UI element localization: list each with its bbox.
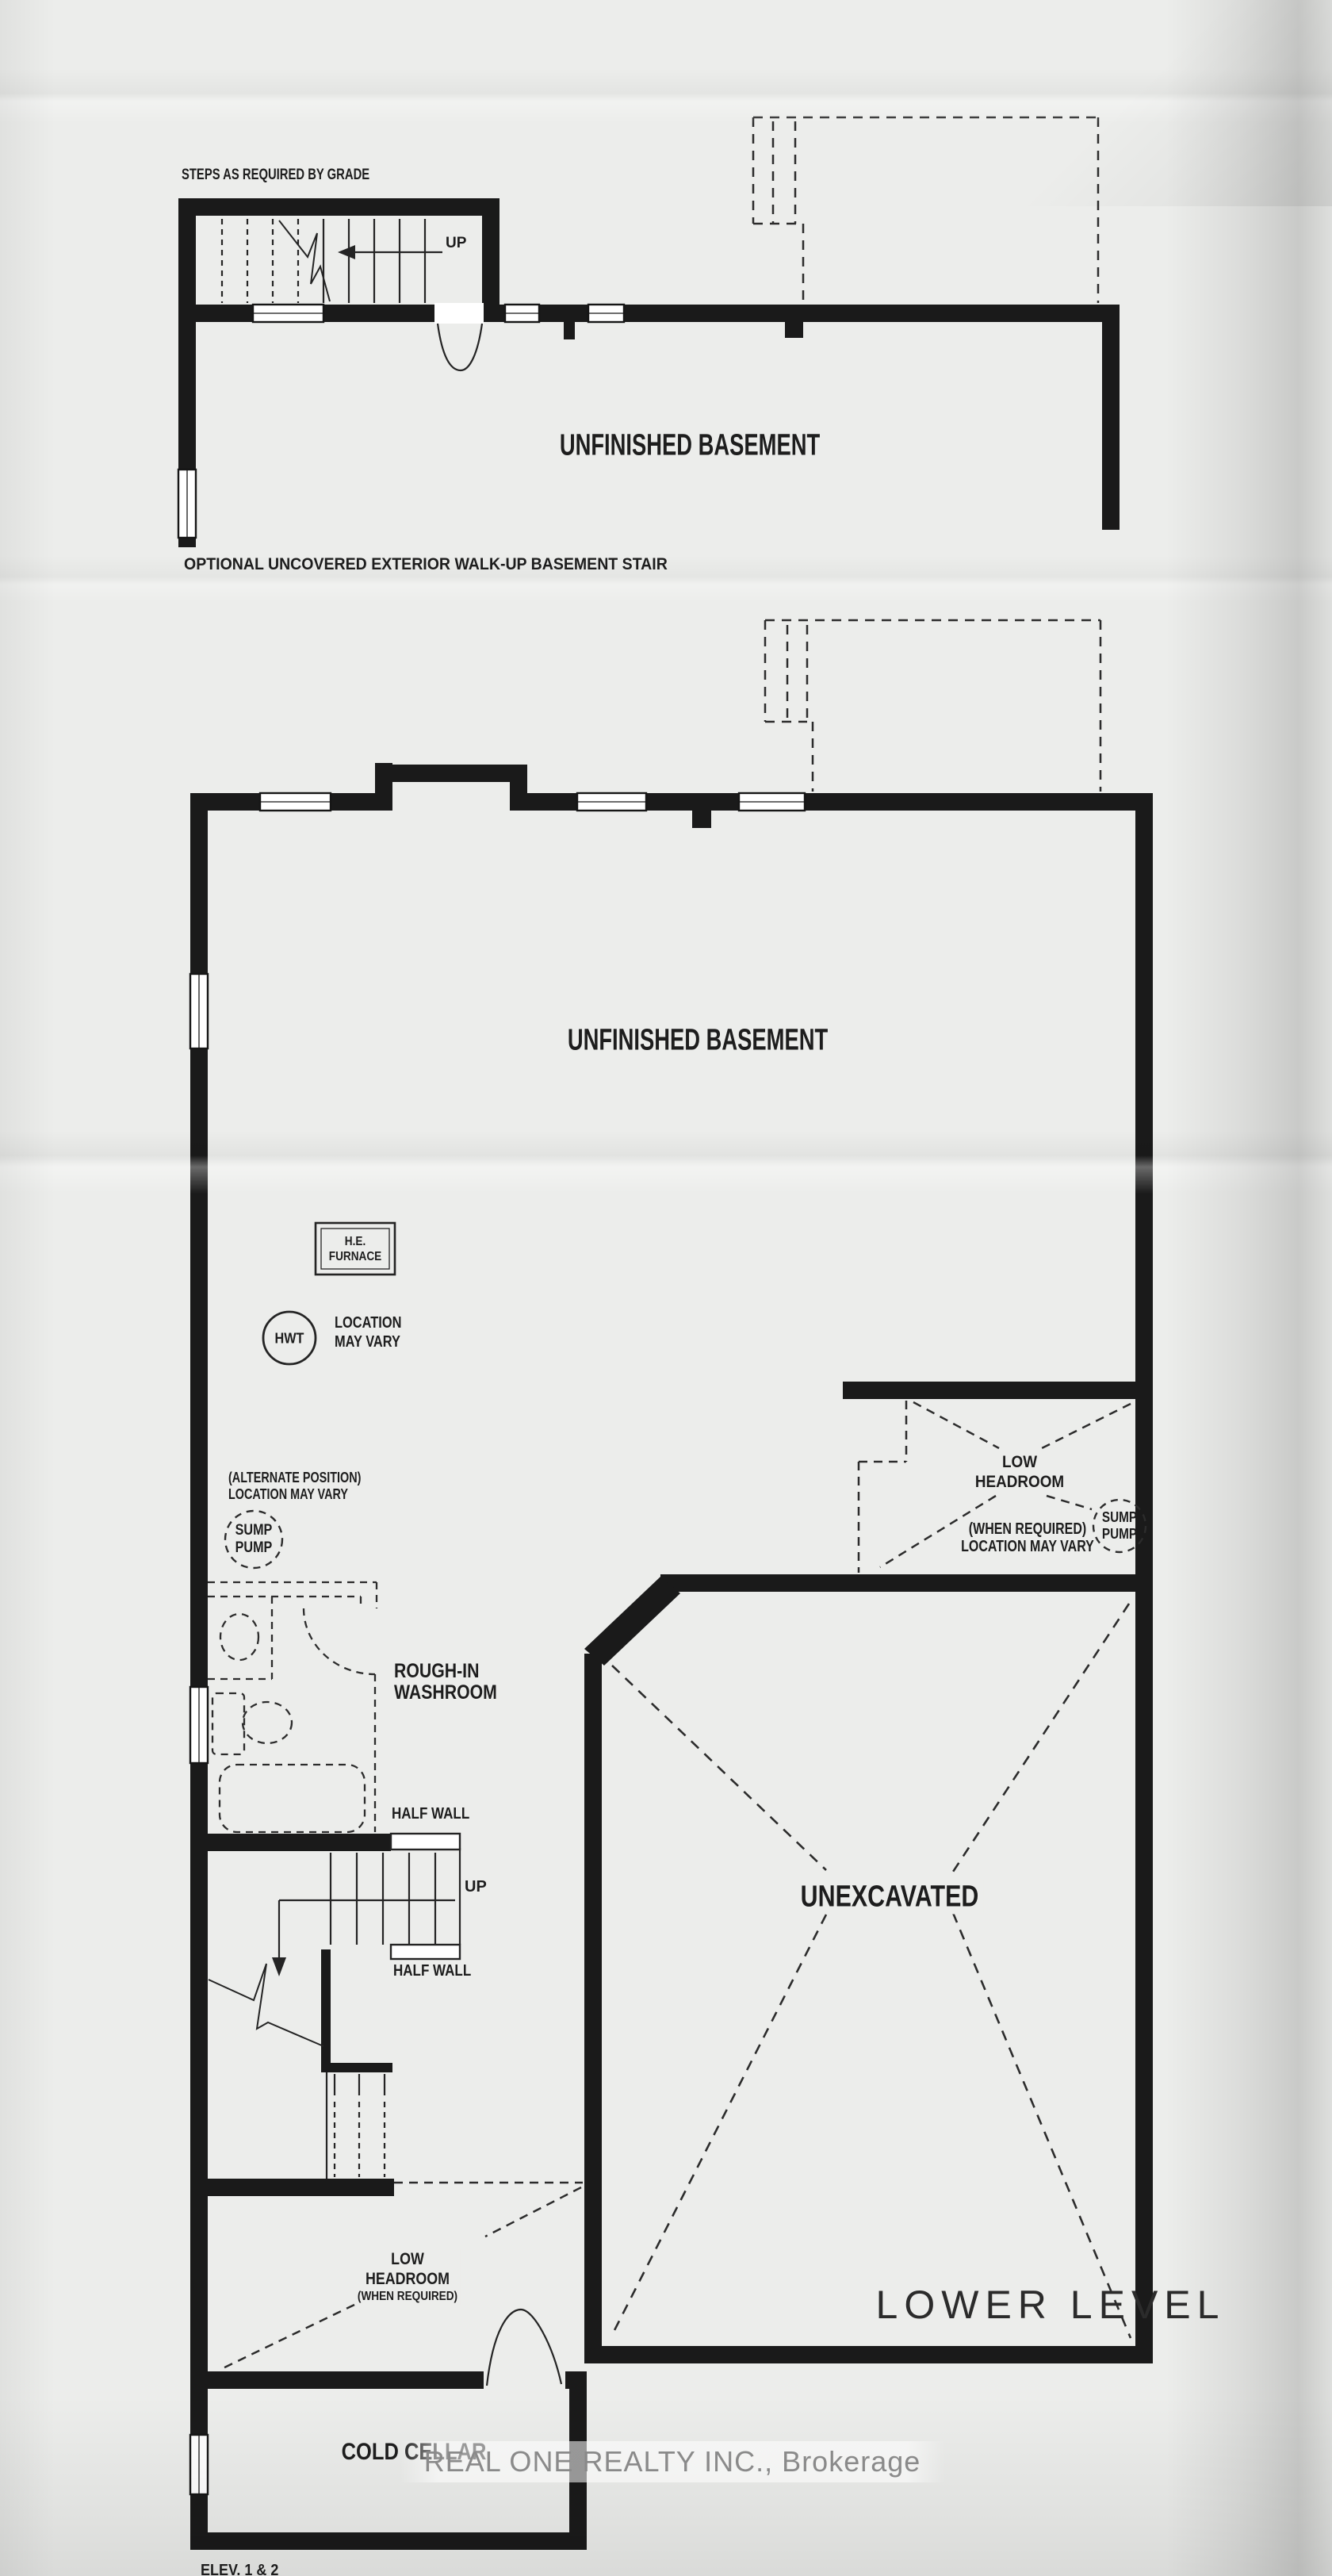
porch-outline-top-dashed xyxy=(753,117,1098,303)
alternate-position-note: (ALTERNATE POSITION) LOCATION MAY VARY xyxy=(228,1470,361,1503)
low-headroom-bottom-line2: HEADROOM xyxy=(358,2269,457,2289)
window-icon xyxy=(588,305,624,322)
sump-pump-left-label: SUMP PUMP xyxy=(235,1522,273,1557)
steps-note: STEPS AS REQUIRED BY GRADE xyxy=(182,167,369,184)
plan-title: LOWER LEVEL xyxy=(876,2282,1226,2328)
bathtub-icon xyxy=(220,1765,365,1832)
when-required-right-line1: (WHEN REQUIRED) xyxy=(961,1520,1094,1538)
half-wall-lower-rect xyxy=(391,1945,460,1959)
furnace-label-line1: H.E. xyxy=(329,1234,381,1249)
stair-treads-top-dashed xyxy=(222,219,298,303)
unexcavated-cross xyxy=(612,1604,1131,2338)
low-headroom-right-line1: LOW xyxy=(975,1452,1064,1472)
alternate-position-line2: LOCATION MAY VARY xyxy=(228,1486,361,1503)
top-plan-walls xyxy=(178,198,1120,547)
low-headroom-bottom-label: LOW HEADROOM (WHEN REQUIRED) xyxy=(355,2249,461,2305)
window-icon xyxy=(178,470,196,538)
furnace-label: H.E. FURNACE xyxy=(329,1234,381,1264)
window-icon xyxy=(739,793,805,811)
unexcavated-label: UNEXCAVATED xyxy=(795,1880,983,1915)
washroom-label-line1: ROUGH-IN xyxy=(394,1661,497,1682)
sump-pump-left-line2: PUMP xyxy=(235,1539,273,1557)
break-line-icon xyxy=(209,1964,323,2046)
stair-treads-main xyxy=(327,1848,460,2179)
washroom-rough-in xyxy=(208,1582,377,1832)
hwt-note-line2: MAY VARY xyxy=(335,1332,401,1351)
low-headroom-right-line2: HEADROOM xyxy=(975,1472,1064,1492)
window-icon xyxy=(260,793,331,811)
elevation-note: ELEV. 1 & 2 xyxy=(201,2562,278,2576)
when-required-right-note: (WHEN REQUIRED) LOCATION MAY VARY xyxy=(961,1520,1094,1555)
furnace-label-line2: FURNACE xyxy=(329,1249,381,1264)
hwt-note-line1: LOCATION xyxy=(335,1313,401,1332)
room-label-unfinished-basement-main: UNFINISHED BASEMENT xyxy=(568,1024,828,1058)
when-required-right-line2: LOCATION MAY VARY xyxy=(961,1538,1094,1555)
break-line-icon xyxy=(279,220,330,301)
brokerage-watermark: REAL ONE REALTY INC., Brokerage xyxy=(400,2441,945,2482)
sump-pump-right-label: SUMP PUMP xyxy=(1102,1509,1137,1543)
floor-plan-drawing xyxy=(0,0,1332,2576)
half-wall-upper-label: HALF WALL xyxy=(392,1805,469,1823)
window-openings xyxy=(178,303,805,2494)
low-headroom-right-label: LOW HEADROOM xyxy=(975,1452,1064,1492)
toilet-tank-icon xyxy=(212,1693,244,1754)
half-wall-upper-rect xyxy=(391,1834,460,1850)
window-icon xyxy=(505,305,539,322)
room-label-unfinished-basement-top: UNFINISHED BASEMENT xyxy=(560,429,820,463)
window-icon xyxy=(190,974,208,1048)
window-icon xyxy=(253,305,323,322)
low-headroom-bottom-line3: (WHEN REQUIRED) xyxy=(358,2289,457,2305)
window-icon xyxy=(190,2435,208,2494)
window-icon xyxy=(577,793,646,811)
washroom-door-swing-icon xyxy=(304,1608,375,1674)
stair-treads-main-dashed xyxy=(335,2102,385,2177)
up-label-top: UP xyxy=(446,235,466,252)
low-headroom-bottom-line1: LOW xyxy=(358,2249,457,2269)
up-arrow-top xyxy=(338,245,442,259)
toilet-bowl-icon xyxy=(243,1702,292,1743)
walkup-door-swing-icon xyxy=(438,324,482,370)
half-wall-lower-label: HALF WALL xyxy=(393,1962,471,1980)
hwt-label: HWT xyxy=(275,1331,304,1347)
walkup-door-opening xyxy=(434,303,484,324)
sump-pump-left-line1: SUMP xyxy=(235,1522,273,1539)
alternate-position-line1: (ALTERNATE POSITION) xyxy=(228,1470,361,1486)
up-label-main: UP xyxy=(465,1878,487,1896)
hwt-note: LOCATION MAY VARY xyxy=(335,1313,401,1351)
sump-pump-right-line1: SUMP xyxy=(1102,1509,1137,1526)
cold-cellar-door-swing-icon xyxy=(487,2310,561,2386)
washroom-label: ROUGH-IN WASHROOM xyxy=(394,1661,497,1704)
floor-plan-photo: STEPS AS REQUIRED BY GRADE UP UNFINISHED… xyxy=(0,0,1332,2576)
washroom-label-line2: WASHROOM xyxy=(394,1682,497,1704)
stair-treads-top xyxy=(323,219,425,303)
window-icon xyxy=(190,1687,208,1763)
sink-icon xyxy=(220,1614,258,1660)
sump-pump-right-line2: PUMP xyxy=(1102,1526,1137,1543)
porch-outline-main-dashed xyxy=(765,620,1100,792)
walkup-caption: OPTIONAL UNCOVERED EXTERIOR WALK-UP BASE… xyxy=(184,555,668,574)
